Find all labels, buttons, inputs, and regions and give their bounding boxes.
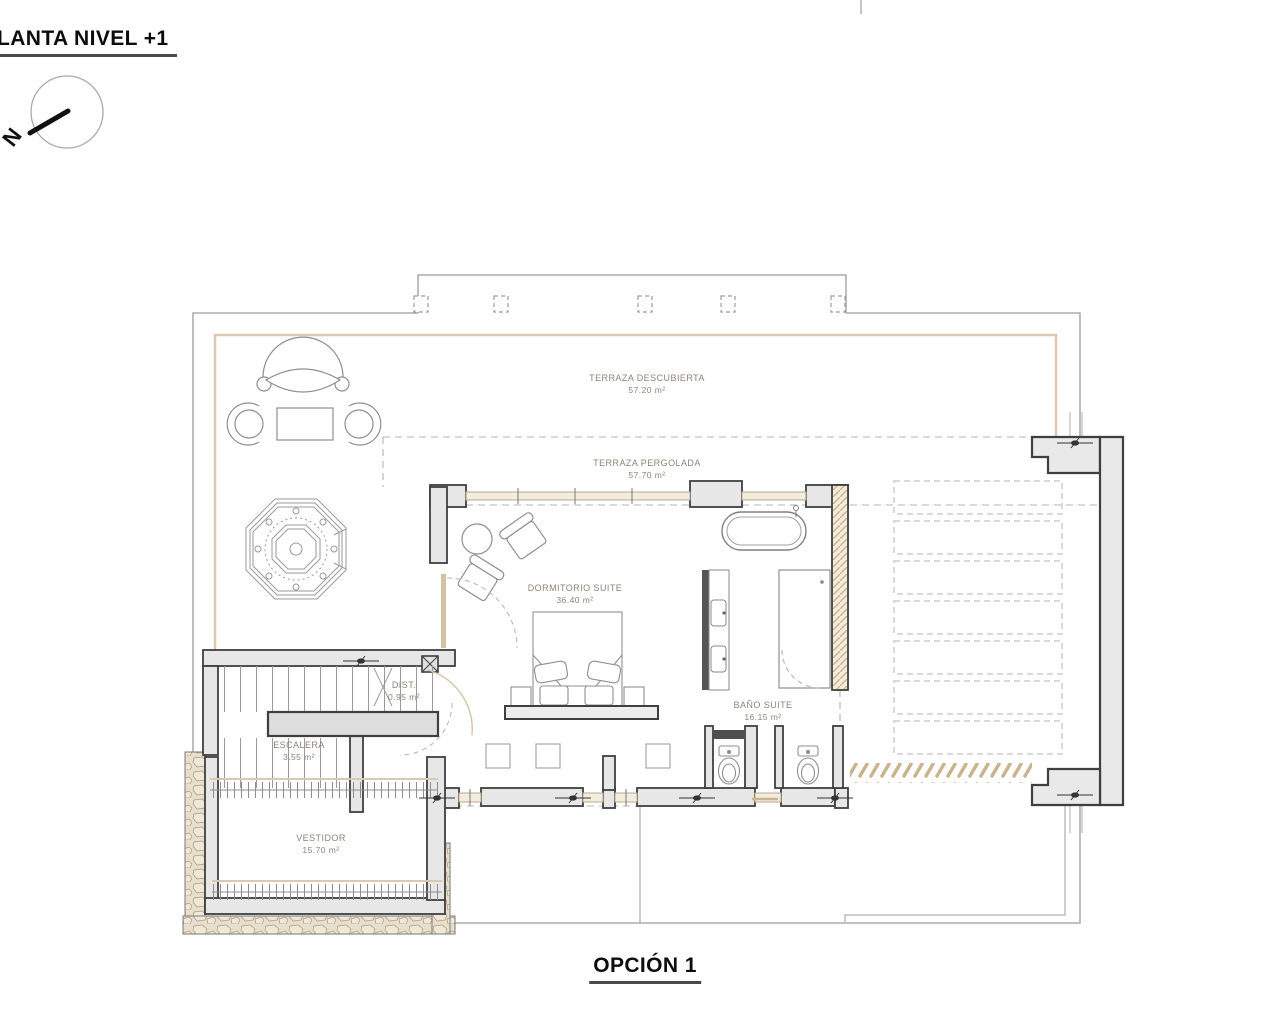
room-name: DORMITORIO SUITE	[528, 583, 623, 595]
bed	[505, 612, 658, 719]
bathtub	[722, 506, 806, 551]
drawing-sheet: N LANTA NIVEL +1 OPCIÓN 1 TERRAZA DESCUB…	[0, 0, 1280, 1024]
pergola-beams	[894, 481, 1062, 754]
room-area: 57.70 m²	[593, 470, 701, 481]
vanity	[702, 570, 729, 690]
room-name: TERRAZA DESCUBIERTA	[589, 373, 705, 385]
room-label-terraza-descubierta: TERRAZA DESCUBIERTA 57.20 m²	[589, 373, 705, 396]
room-name: DIST.	[388, 680, 420, 692]
c-wall	[1032, 437, 1123, 805]
wc-shelf	[713, 730, 745, 739]
room-name: TERRAZA PERGOLADA	[593, 458, 701, 470]
shower	[779, 570, 830, 688]
column-markers	[414, 296, 845, 312]
room-name: ESCALERA	[273, 740, 325, 752]
sheet-title: LANTA NIVEL +1	[0, 27, 177, 57]
handrail	[268, 712, 438, 736]
room-name: VESTIDOR	[296, 833, 346, 845]
room-label-dormitorio-suite: DORMITORIO SUITE 36.40 m²	[528, 583, 623, 606]
room-area: 15.70 m²	[296, 845, 346, 856]
room-label-escalera: ESCALERA 3.55 m²	[273, 740, 325, 763]
room-label-vestidor: VESTIDOR 15.70 m²	[296, 833, 346, 856]
north-arrow-icon: N	[0, 76, 103, 151]
room-area: 3.55 m²	[273, 752, 325, 763]
room-label-dist: DIST. 0.95 m²	[388, 680, 420, 703]
outdoor-sofa-set	[227, 337, 381, 445]
room-label-terraza-pergolada: TERRAZA PERGOLADA 57.70 m²	[593, 458, 701, 481]
toilet	[719, 746, 819, 784]
door-leaf	[441, 574, 446, 648]
room-area: 36.40 m²	[528, 595, 623, 606]
room-name: BAÑO SUITE	[733, 700, 792, 712]
headboard	[505, 706, 658, 719]
jacuzzi	[246, 499, 346, 599]
floor-plan: N	[0, 0, 1280, 1024]
north-label: N	[0, 123, 27, 151]
option-title: OPCIÓN 1	[589, 954, 701, 984]
room-area: 57.20 m²	[589, 385, 705, 396]
room-area: 0.95 m²	[388, 692, 420, 703]
floor-squares	[486, 744, 670, 768]
room-area: 16.15 m²	[733, 712, 792, 723]
louver-hatch	[850, 763, 1032, 783]
room-label-bano-suite: BAÑO SUITE 16.15 m²	[733, 700, 792, 723]
